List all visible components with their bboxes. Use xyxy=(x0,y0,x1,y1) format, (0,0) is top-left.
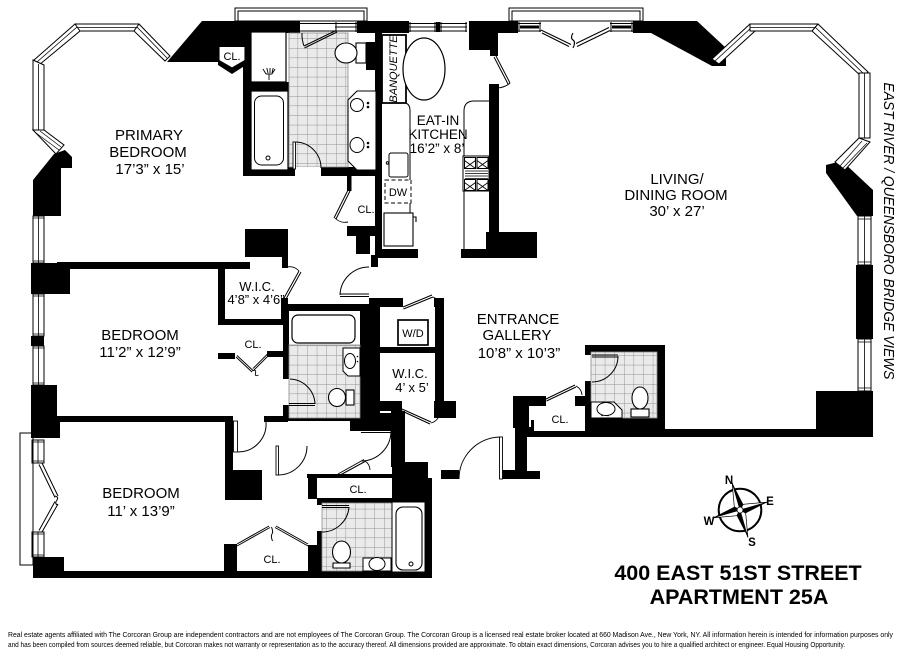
svg-text:BEDROOM: BEDROOM xyxy=(102,485,180,502)
svg-text:W.I.C.: W.I.C. xyxy=(392,366,427,381)
svg-text:4’8” x 4’6”: 4’8” x 4’6” xyxy=(227,292,284,307)
svg-text:11’2” x 12’9”: 11’2” x 12’9” xyxy=(99,344,180,361)
svg-text:EAT-IN: EAT-IN xyxy=(417,113,460,128)
svg-text:CL.: CL. xyxy=(263,554,280,566)
svg-text:BEDROOM: BEDROOM xyxy=(109,144,187,161)
svg-text:CL.: CL. xyxy=(244,339,261,351)
svg-text:S: S xyxy=(748,537,756,549)
svg-text:Real estate agents affiliated: Real estate agents affiliated with The C… xyxy=(8,632,894,639)
svg-text:EAST RIVER / QUEENSBORO BRIDGE: EAST RIVER / QUEENSBORO BRIDGE VIEWS xyxy=(880,83,897,380)
svg-text:16’2” x 8’: 16’2” x 8’ xyxy=(410,141,465,156)
svg-text:ENTRANCE: ENTRANCE xyxy=(477,311,560,328)
svg-text:BANQUETTE: BANQUETTE xyxy=(388,35,400,103)
svg-text:CL.: CL. xyxy=(223,51,240,63)
svg-text:APARTMENT 25A: APARTMENT 25A xyxy=(650,585,829,609)
svg-text:LIVING/: LIVING/ xyxy=(650,171,704,188)
svg-text:W/D: W/D xyxy=(402,328,423,340)
svg-text:400 EAST 51ST STREET: 400 EAST 51ST STREET xyxy=(614,561,861,585)
svg-text:CL.: CL. xyxy=(551,414,568,426)
svg-text:CL.: CL. xyxy=(349,484,366,496)
svg-text:DINING ROOM: DINING ROOM xyxy=(624,187,727,204)
svg-text:4’ x 5’: 4’ x 5’ xyxy=(395,380,429,395)
svg-text:CL.: CL. xyxy=(357,204,374,216)
svg-text:11’ x 13’9”: 11’ x 13’9” xyxy=(107,503,175,520)
svg-text:N: N xyxy=(725,475,733,487)
svg-text:PRIMARY: PRIMARY xyxy=(115,127,183,144)
svg-text:30’ x 27’: 30’ x 27’ xyxy=(649,203,704,220)
svg-text:and has been compiled from sou: and has been compiled from sources deeme… xyxy=(8,642,845,649)
svg-text:KITCHEN: KITCHEN xyxy=(408,127,467,142)
svg-text:BEDROOM: BEDROOM xyxy=(101,327,179,344)
svg-text:17’3” x 15’: 17’3” x 15’ xyxy=(115,161,184,178)
svg-text:W: W xyxy=(704,516,715,528)
svg-text:DW: DW xyxy=(389,187,408,199)
svg-text:E: E xyxy=(766,496,774,508)
svg-text:10’8” x 10’3”: 10’8” x 10’3” xyxy=(478,345,561,362)
svg-text:GALLERY: GALLERY xyxy=(483,327,552,344)
